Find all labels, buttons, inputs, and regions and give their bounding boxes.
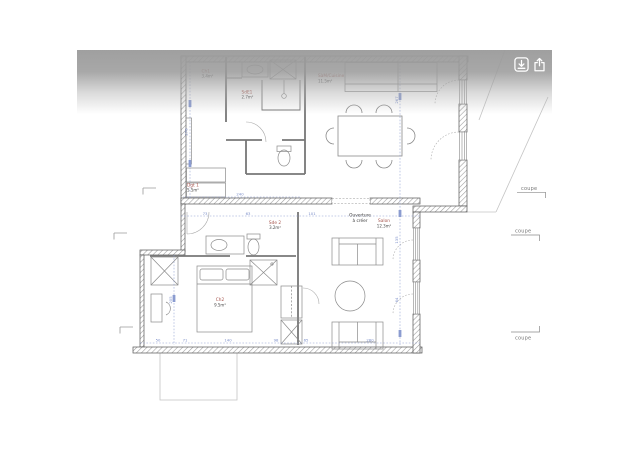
wall xyxy=(459,160,467,206)
window xyxy=(414,228,420,260)
coupe-label: coupe xyxy=(515,336,531,342)
sofa xyxy=(332,238,383,265)
floor-plan-drawing: 50 71 140 98 65 280 73 63 101 240 278 20… xyxy=(77,50,552,408)
duct-shaft xyxy=(270,60,296,79)
room-area-salon: 12.3m² xyxy=(377,224,392,229)
wall xyxy=(133,347,422,353)
wall xyxy=(140,255,144,347)
dining-chair xyxy=(407,128,415,144)
room-area-sde2: 3.2m² xyxy=(269,225,281,230)
save-image-button[interactable] xyxy=(514,57,529,72)
viewer-page: 50 71 140 98 65 280 73 63 101 240 278 20… xyxy=(0,0,640,453)
corner-mark xyxy=(114,233,127,240)
wall xyxy=(459,56,467,80)
dim-value: 101 xyxy=(308,211,316,216)
radiator xyxy=(186,118,192,164)
room-area-sam-cuisine: 11.5m² xyxy=(318,79,333,84)
dim-value: 73 xyxy=(203,211,208,216)
windows xyxy=(414,80,467,314)
opening-note-line2: à créer xyxy=(352,217,367,224)
dim-value: 50 xyxy=(156,338,161,343)
window xyxy=(460,132,467,160)
toilet xyxy=(247,234,260,255)
dining-table xyxy=(338,116,402,156)
dining-chair xyxy=(346,160,362,168)
dim-value: 65 xyxy=(304,338,309,343)
room-labels: Ch1 3.4m² SdE1 2.7m² SàM/Cuisine 11.5m² … xyxy=(187,69,392,308)
dining-set xyxy=(326,105,415,168)
dim-value: 71 xyxy=(183,338,188,343)
dim-value: 278 xyxy=(184,128,189,136)
dining-chair xyxy=(376,105,392,113)
window xyxy=(414,282,420,314)
dim-value: 205 xyxy=(168,296,173,304)
dim-value: 140 xyxy=(224,338,232,343)
round-table xyxy=(335,281,365,311)
wall xyxy=(413,260,420,282)
corner-mark xyxy=(120,327,133,334)
door-swing xyxy=(431,132,459,160)
shower xyxy=(250,260,277,285)
coupe-label: coupe xyxy=(521,186,537,192)
room-area-sde1: 2.7m² xyxy=(242,95,254,100)
toilet xyxy=(277,146,291,166)
wall xyxy=(413,212,420,228)
coupe-mark: coupe xyxy=(517,186,546,198)
opening-note-line1: Ouverture xyxy=(349,213,371,219)
bed xyxy=(197,266,252,332)
room-area-ch1: 3.4m² xyxy=(202,74,214,79)
share-button[interactable] xyxy=(532,57,547,72)
cupboard xyxy=(187,168,226,197)
reference-corner-marks xyxy=(114,188,156,334)
dim-value: 98 xyxy=(274,338,279,343)
wall xyxy=(413,206,467,212)
wall xyxy=(181,56,468,62)
wall xyxy=(140,250,185,255)
terrace-diagonal-1 xyxy=(479,50,505,120)
door-swing xyxy=(393,294,413,314)
bathroom-counter xyxy=(206,236,244,254)
partition xyxy=(246,140,305,174)
ceiling-light xyxy=(282,80,287,98)
fixtures-lower xyxy=(151,234,383,349)
wall xyxy=(459,104,467,132)
coupe-label: coupe xyxy=(515,229,531,235)
door-swing xyxy=(246,122,266,142)
opening-annotation: Ouverture à créer xyxy=(349,213,371,225)
room-area-ch2: 9.5m² xyxy=(214,303,226,308)
dim-value: 280 xyxy=(366,338,374,343)
kitchen-counter xyxy=(345,63,437,92)
dim-value: 267 xyxy=(394,96,399,104)
wall xyxy=(413,314,420,353)
dim-value: 64 xyxy=(394,297,399,302)
dim-value: 63 xyxy=(246,211,251,216)
share-icon xyxy=(532,57,547,72)
dim-value: 135 xyxy=(394,236,399,244)
wall xyxy=(181,204,185,252)
dim-value: 240 xyxy=(236,192,244,197)
coupe-mark: coupe xyxy=(511,229,540,242)
room-area-dgt1: 5.5m² xyxy=(187,188,199,193)
fixtures-upper xyxy=(186,60,437,197)
opening-to-create xyxy=(332,199,370,204)
window xyxy=(460,80,467,104)
wall xyxy=(370,198,420,204)
terrace-bottom-left xyxy=(160,353,237,400)
dining-chair xyxy=(346,105,362,113)
door-swing xyxy=(435,80,459,104)
coupe-mark: coupe xyxy=(511,326,540,342)
terrace-diagonal-2 xyxy=(496,97,548,212)
section-marks: coupe coupe coupe xyxy=(511,186,546,342)
dining-chair xyxy=(376,160,392,168)
corner-mark xyxy=(143,188,156,195)
washbasin xyxy=(242,62,268,77)
shower-enclosure xyxy=(262,80,300,110)
wall xyxy=(181,198,332,204)
save-image-icon xyxy=(514,57,529,72)
floor-plan-photo: 50 71 140 98 65 280 73 63 101 240 278 20… xyxy=(77,50,552,408)
door-swing xyxy=(303,288,319,304)
dining-chair xyxy=(326,128,334,144)
sofa xyxy=(332,322,383,349)
